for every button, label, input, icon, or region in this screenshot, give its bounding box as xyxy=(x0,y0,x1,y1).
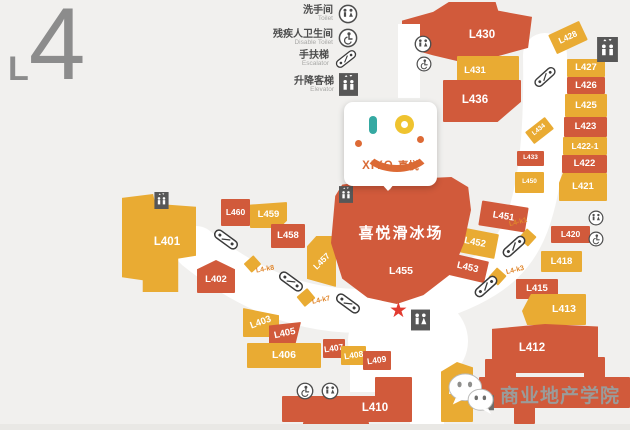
logo-bubble-tail xyxy=(380,182,396,199)
unit-l406: L406 xyxy=(247,343,321,368)
logo-smile-dot xyxy=(417,136,424,143)
unit-l455: L455 xyxy=(389,265,413,277)
unit-l421: L421 xyxy=(559,173,607,201)
location-star-icon: ★ xyxy=(389,300,408,321)
unit-l423: L423 xyxy=(564,117,607,137)
elevator-icon xyxy=(597,37,618,62)
unit-l458: L458 xyxy=(271,224,305,248)
disabled-toilet-icon xyxy=(416,56,432,72)
watermark: 商业地产学院 xyxy=(444,372,620,416)
disabled-toilet-icon xyxy=(296,382,314,400)
unit-l409: L409 xyxy=(363,351,391,370)
unit-l413: L413 xyxy=(522,294,586,325)
elevator-icon xyxy=(154,192,169,209)
brand-name: XIYO 喜悦 xyxy=(344,158,437,173)
toilet-icon xyxy=(588,210,604,226)
unit-l410-stub xyxy=(375,377,412,398)
toilet-icon xyxy=(411,309,430,331)
rink-name: 喜悦滑冰场 xyxy=(358,222,443,243)
wechat-icon xyxy=(444,372,498,416)
unit-l422: L422 xyxy=(562,155,607,173)
elevator-icon xyxy=(339,186,353,203)
unit-l418: L418 xyxy=(541,251,582,272)
unit-l420: L420 xyxy=(551,226,590,243)
logo-smile-dot xyxy=(355,140,362,147)
watermark-text: 商业地产学院 xyxy=(500,381,620,408)
unit-l460: L460 xyxy=(221,199,250,226)
toilet-icon xyxy=(414,35,432,53)
mall-floor-map: L4 洗手间Toilet 残疾人卫生间Disable Toilet 手扶梯Esc… xyxy=(0,0,630,430)
brand-logo-bubble: XIYO 喜悦 xyxy=(344,102,437,186)
unit-l433: L433 xyxy=(517,151,544,166)
unit-l422-1: L422-1 xyxy=(563,137,607,155)
toilet-icon xyxy=(321,382,339,400)
unit-l426: L426 xyxy=(567,77,605,94)
unit-l425: L425 xyxy=(565,94,607,117)
bottom-edge xyxy=(0,424,630,430)
unit-l450: L450 xyxy=(515,172,544,193)
disabled-toilet-icon xyxy=(588,231,604,247)
